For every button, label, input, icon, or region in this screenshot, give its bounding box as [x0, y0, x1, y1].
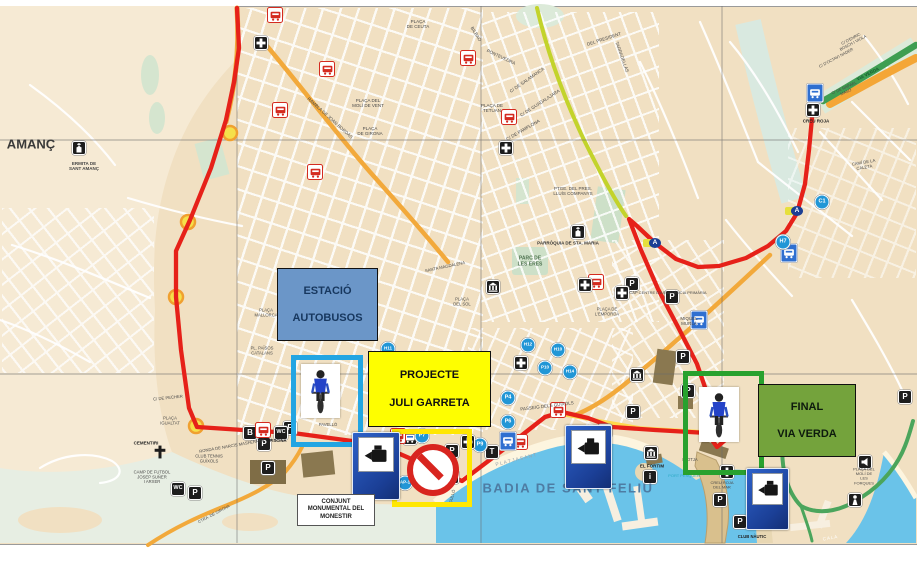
callout-line: AUTOBUSOS [278, 312, 377, 324]
camera-icon [358, 437, 393, 472]
cyclist-icon [699, 387, 739, 439]
final-via-verda-callout: FINAL VIA VERDA [758, 384, 856, 457]
monastery-label-box: CONJUNT MONUMENTAL DEL MONESTIR [297, 494, 375, 526]
callout-line: VIA VERDA [759, 428, 855, 440]
end-point-frame-green [683, 371, 764, 475]
cyclist-card [699, 387, 739, 442]
camera-icon [571, 430, 605, 464]
projecte-juli-garreta-callout: PROJECTE JULI GARRETA [368, 351, 491, 427]
callout-line: ESTACIÓ [278, 285, 377, 297]
cyclist-icon [301, 364, 340, 415]
camera-sign [352, 432, 400, 500]
callout-line: PROJECTE [369, 369, 490, 381]
map-figure: PPPPPPPPPPPPPPBTiiWCWCWCP4P6P7P9P10H10H1… [0, 0, 917, 561]
camera-sign [565, 425, 612, 489]
estacio-autobusos-callout: ESTACIÓ AUTOBUSOS [277, 268, 378, 341]
no-entry-icon [407, 444, 459, 496]
camera-icon [752, 473, 784, 505]
callout-line: JULI GARRETA [369, 397, 490, 409]
camera-sign [746, 468, 789, 530]
cyclist-card [301, 364, 340, 418]
callout-line: FINAL [759, 401, 855, 413]
